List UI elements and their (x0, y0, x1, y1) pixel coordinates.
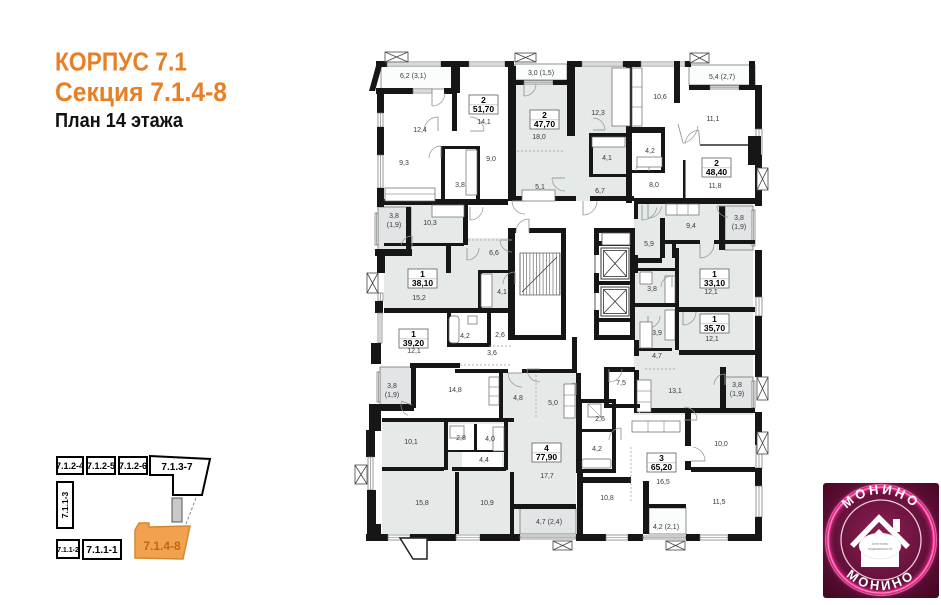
svg-text:3,8: 3,8 (647, 286, 657, 293)
svg-text:10,8: 10,8 (600, 495, 614, 502)
svg-text:38,10: 38,10 (412, 278, 434, 288)
svg-text:4,2: 4,2 (645, 148, 655, 155)
svg-text:(1,9): (1,9) (385, 392, 399, 399)
svg-text:7,5: 7,5 (616, 380, 626, 387)
svg-text:3,8: 3,8 (734, 215, 744, 222)
svg-text:10,9: 10,9 (480, 500, 494, 507)
svg-text:(1,9): (1,9) (732, 224, 746, 231)
svg-text:5,1: 5,1 (535, 184, 545, 191)
svg-text:6,7: 6,7 (595, 188, 605, 195)
svg-text:12,4: 12,4 (413, 127, 427, 134)
svg-text:4,7: 4,7 (652, 353, 662, 360)
svg-text:2,6: 2,6 (495, 332, 505, 339)
svg-text:(1,9): (1,9) (387, 222, 401, 229)
svg-text:4,1: 4,1 (497, 289, 507, 296)
svg-text:5,0: 5,0 (548, 400, 558, 407)
svg-text:48,40: 48,40 (706, 167, 728, 177)
svg-text:10,3: 10,3 (423, 220, 437, 227)
svg-text:3,8: 3,8 (389, 213, 399, 220)
svg-text:14,1: 14,1 (477, 119, 491, 126)
svg-text:16,5: 16,5 (656, 479, 670, 486)
svg-text:6,6: 6,6 (489, 250, 499, 257)
svg-text:4,7 (2,4): 4,7 (2,4) (536, 519, 562, 526)
svg-text:11,8: 11,8 (708, 183, 721, 190)
svg-text:12,1: 12,1 (705, 336, 719, 343)
svg-text:7.1.2-5: 7.1.2-5 (87, 461, 115, 471)
svg-text:7.1.3-7: 7.1.3-7 (161, 462, 193, 473)
svg-text:4,0: 4,0 (485, 436, 495, 443)
svg-text:План 14 этажа: План 14 этажа (55, 110, 184, 132)
svg-text:11,5: 11,5 (712, 499, 725, 506)
svg-text:4,2 (2,1): 4,2 (2,1) (653, 524, 679, 531)
svg-text:17,7: 17,7 (540, 473, 554, 480)
svg-text:12,1: 12,1 (407, 348, 421, 355)
svg-text:9,0: 9,0 (486, 156, 496, 163)
svg-text:12,3: 12,3 (591, 110, 605, 117)
svg-text:65,20: 65,20 (651, 462, 673, 472)
svg-text:7.1.1-1: 7.1.1-1 (86, 545, 118, 556)
svg-text:КОРПУС 7.1: КОРПУС 7.1 (55, 47, 187, 77)
svg-text:10,0: 10,0 (714, 441, 728, 448)
svg-text:14,8: 14,8 (448, 387, 462, 394)
svg-text:5,9: 5,9 (644, 241, 654, 248)
svg-text:77,90: 77,90 (536, 452, 558, 462)
svg-text:3,0 (1,5): 3,0 (1,5) (528, 70, 554, 77)
svg-text:11,1: 11,1 (706, 116, 719, 123)
svg-text:3,8: 3,8 (387, 383, 397, 390)
svg-text:15,8: 15,8 (415, 500, 429, 507)
svg-text:7.1.2-6: 7.1.2-6 (119, 461, 147, 471)
svg-text:13,1: 13,1 (668, 388, 682, 395)
svg-text:10,6: 10,6 (653, 94, 667, 101)
svg-text:2,8: 2,8 (456, 435, 466, 442)
svg-text:7.1.1-2: 7.1.1-2 (57, 547, 79, 554)
svg-text:Секция 7.1.4-8: Секция 7.1.4-8 (55, 77, 227, 107)
svg-text:4,8: 4,8 (513, 395, 523, 402)
svg-text:7.1.1-3: 7.1.1-3 (60, 491, 70, 518)
svg-text:15,2: 15,2 (412, 295, 426, 302)
svg-text:12,1: 12,1 (704, 289, 718, 296)
svg-text:3,9: 3,9 (652, 330, 662, 337)
svg-text:недвижимости: недвижимости (868, 547, 892, 551)
svg-text:Агентство: Агентство (872, 542, 889, 546)
svg-text:4,2: 4,2 (460, 333, 470, 340)
svg-text:7.1.4-8: 7.1.4-8 (143, 539, 181, 553)
svg-text:9,4: 9,4 (686, 223, 696, 230)
svg-text:3,6: 3,6 (487, 350, 497, 357)
svg-text:8,0: 8,0 (649, 182, 659, 189)
svg-text:6,2 (3,1): 6,2 (3,1) (400, 73, 426, 80)
svg-text:3,8: 3,8 (455, 182, 465, 189)
svg-text:10,1: 10,1 (404, 439, 418, 446)
svg-text:5,4 (2,7): 5,4 (2,7) (709, 74, 735, 81)
svg-text:4,1: 4,1 (602, 155, 612, 162)
svg-text:33,10: 33,10 (704, 278, 726, 288)
svg-text:7.1.2-4: 7.1.2-4 (56, 461, 84, 471)
svg-text:2,6: 2,6 (595, 416, 605, 423)
svg-text:4,2: 4,2 (592, 446, 602, 453)
svg-text:39,20: 39,20 (403, 338, 425, 348)
svg-text:47,70: 47,70 (534, 119, 556, 129)
svg-text:(1,9): (1,9) (730, 391, 744, 398)
svg-text:3,8: 3,8 (732, 382, 742, 389)
svg-text:9,3: 9,3 (399, 160, 409, 167)
svg-text:4,4: 4,4 (479, 457, 489, 464)
svg-text:51,70: 51,70 (473, 104, 495, 114)
svg-text:35,70: 35,70 (704, 323, 726, 333)
svg-text:18,0: 18,0 (532, 134, 546, 141)
